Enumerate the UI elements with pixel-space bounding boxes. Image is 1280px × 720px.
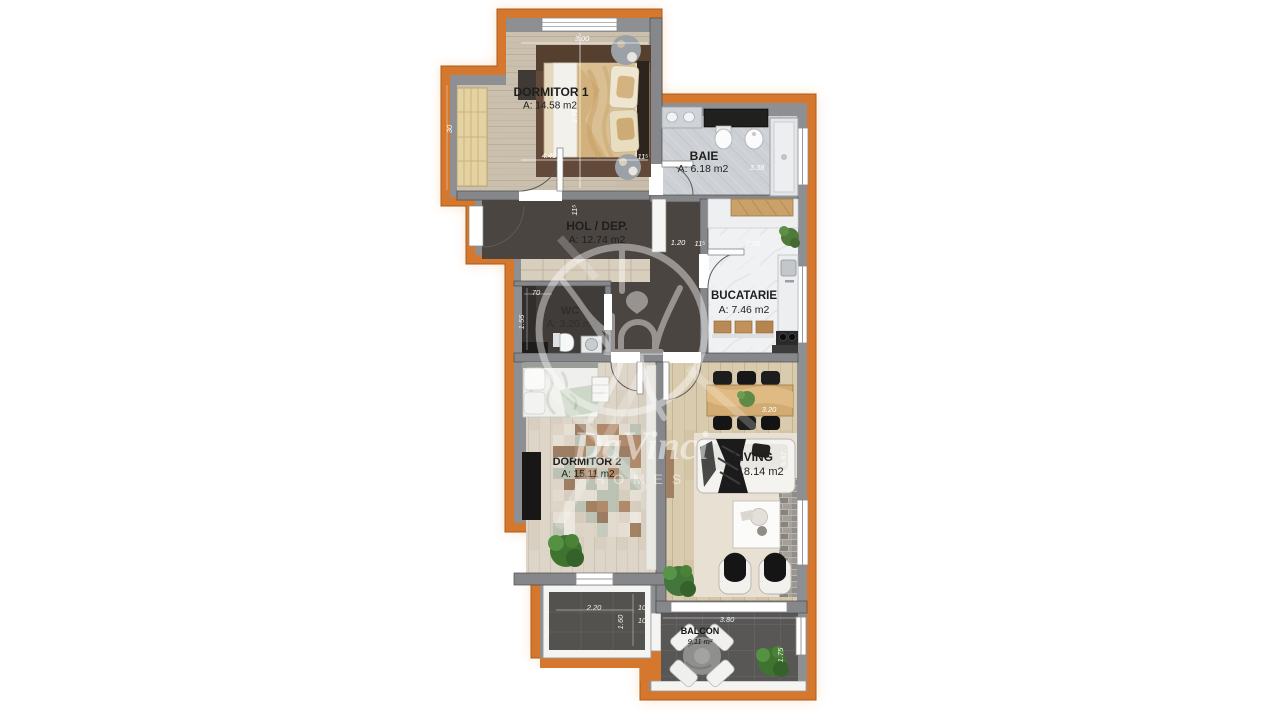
svg-text:1.75: 1.75 xyxy=(776,647,785,662)
svg-text:LIVING: LIVING xyxy=(733,450,773,464)
svg-text:BALCON: BALCON xyxy=(681,626,720,636)
svg-text:1.60: 1.60 xyxy=(616,614,625,629)
svg-text:1.55: 1.55 xyxy=(517,314,526,329)
svg-text:11⁵: 11⁵ xyxy=(570,205,579,216)
svg-text:HOL / DEP.: HOL / DEP. xyxy=(566,219,628,233)
svg-text:11⁵: 11⁵ xyxy=(638,152,649,161)
svg-text:10: 10 xyxy=(638,616,647,625)
svg-text:2.20: 2.20 xyxy=(586,603,602,612)
svg-text:3.20: 3.20 xyxy=(762,405,777,414)
svg-text:H O M E S: H O M E S xyxy=(594,471,683,487)
svg-text:30: 30 xyxy=(445,124,454,133)
svg-text:4.40: 4.40 xyxy=(542,151,557,160)
svg-text:BAIE: BAIE xyxy=(690,149,719,163)
svg-text:3.80: 3.80 xyxy=(720,615,735,624)
svg-text:DaVinci: DaVinci xyxy=(572,423,709,468)
svg-text:3.78: 3.78 xyxy=(570,108,579,123)
svg-text:A: 18.14 m2: A: 18.14 m2 xyxy=(724,466,783,478)
svg-text:11⁵: 11⁵ xyxy=(695,239,706,248)
svg-text:5.67: 5.67 xyxy=(779,451,788,466)
svg-text:1.20: 1.20 xyxy=(671,238,686,247)
svg-text:A: 6.18 m2: A: 6.18 m2 xyxy=(678,163,729,175)
svg-text:3.00: 3.00 xyxy=(575,34,590,43)
svg-text:2.06: 2.06 xyxy=(745,239,761,248)
svg-text:9.11 m²: 9.11 m² xyxy=(688,637,713,646)
svg-text:WC: WC xyxy=(561,305,579,317)
svg-text:3.38: 3.38 xyxy=(750,163,765,172)
svg-text:A: 7.46 m2: A: 7.46 m2 xyxy=(719,304,770,316)
svg-text:DORMITOR 1: DORMITOR 1 xyxy=(513,85,588,99)
svg-text:10: 10 xyxy=(638,603,647,612)
svg-text:70: 70 xyxy=(532,288,541,297)
svg-text:BUCATARIE: BUCATARIE xyxy=(711,290,777,302)
